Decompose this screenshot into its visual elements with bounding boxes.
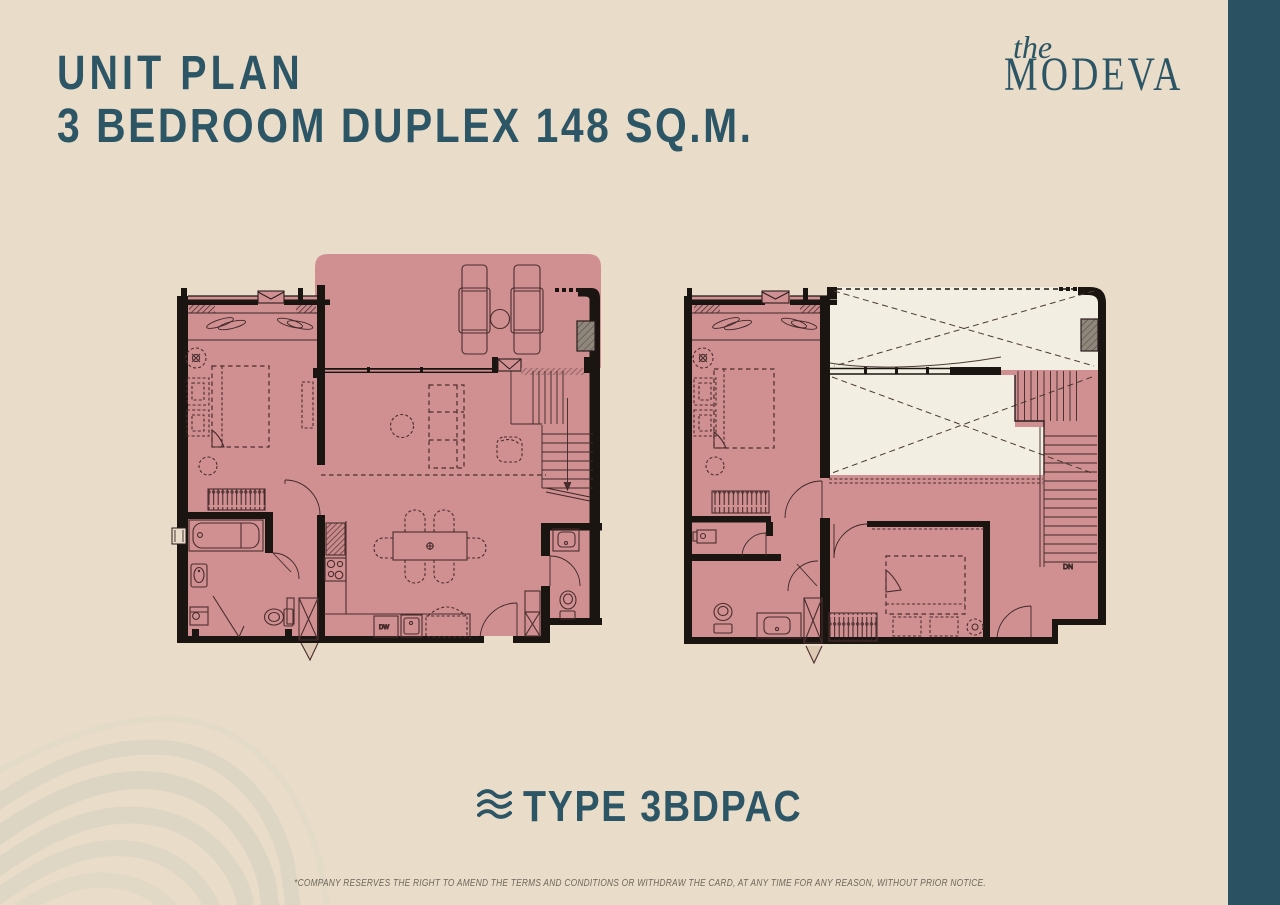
svg-text:DW: DW bbox=[379, 625, 389, 631]
svg-text:DN: DN bbox=[1063, 564, 1073, 571]
